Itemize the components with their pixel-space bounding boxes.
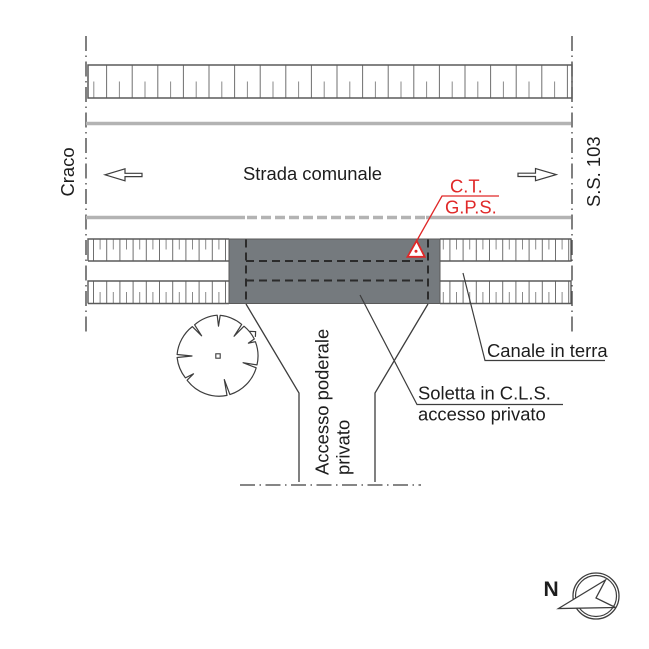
svg-text:Craco: Craco — [57, 147, 78, 196]
svg-text:N: N — [544, 578, 559, 601]
svg-text:Soletta in C.L.S.: Soletta in C.L.S. — [418, 383, 551, 404]
svg-text:privato: privato — [333, 420, 354, 475]
svg-text:G.P.S.: G.P.S. — [445, 197, 497, 218]
svg-text:Strada comunale: Strada comunale — [243, 163, 382, 184]
svg-text:S.S. 103: S.S. 103 — [583, 136, 604, 207]
svg-text:Canale in terra: Canale in terra — [487, 340, 608, 361]
svg-text:C.T.: C.T. — [450, 176, 483, 197]
svg-text:accesso privato: accesso privato — [418, 404, 546, 425]
svg-text:Accesso poderale: Accesso poderale — [312, 329, 333, 475]
